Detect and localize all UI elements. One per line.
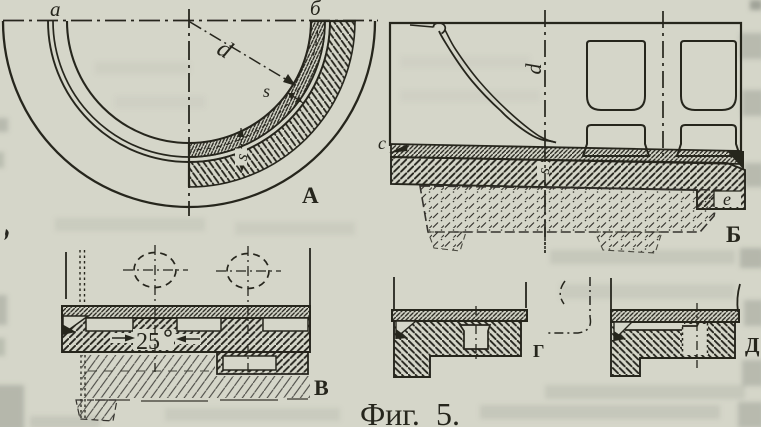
svg-text:Г: Г xyxy=(533,341,544,361)
svg-text:А: А xyxy=(302,183,319,208)
svg-text:25: 25 xyxy=(136,329,160,355)
svg-text:с: с xyxy=(378,133,386,153)
svg-text:d: d xyxy=(521,63,546,75)
svg-text:Фиг.: Фиг. xyxy=(360,396,420,427)
svg-text:В: В xyxy=(314,375,329,400)
svg-text:б: б xyxy=(310,0,322,20)
svg-text:е: е xyxy=(723,189,731,209)
svg-text:5.: 5. xyxy=(436,396,460,427)
svg-text:а: а xyxy=(50,0,61,21)
svg-text:Б: Б xyxy=(726,222,741,247)
svg-text:s: s xyxy=(263,81,270,101)
svg-text:Д: Д xyxy=(745,333,760,357)
